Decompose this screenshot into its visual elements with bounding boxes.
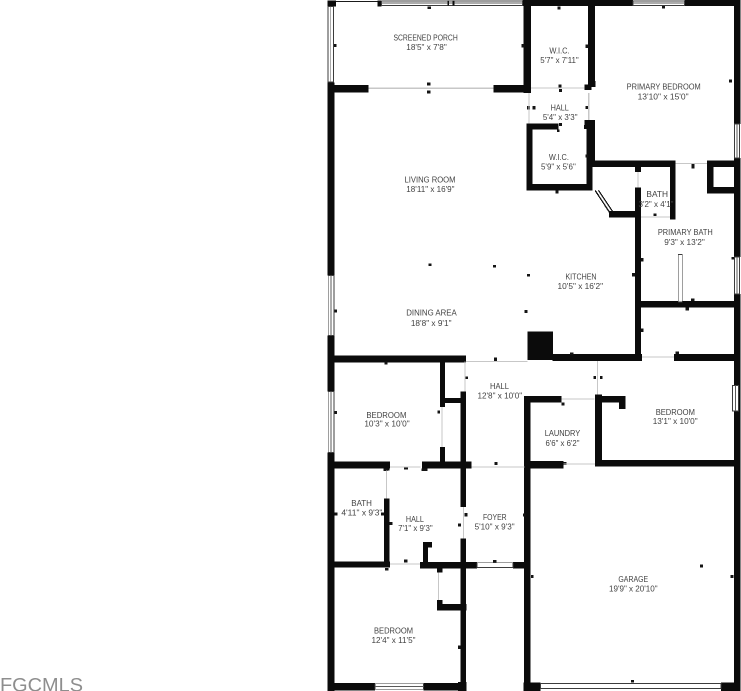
- svg-text:13'1" x 10'0": 13'1" x 10'0": [653, 416, 698, 426]
- svg-text:BATH: BATH: [646, 189, 668, 199]
- svg-text:18'5" x 7'8": 18'5" x 7'8": [406, 42, 447, 52]
- svg-text:19'9" x 20'10": 19'9" x 20'10": [609, 584, 658, 594]
- svg-text:5'9" x 5'6": 5'9" x 5'6": [541, 161, 576, 171]
- svg-text:10'3" x 10'0": 10'3" x 10'0": [364, 418, 409, 428]
- svg-text:GARAGE: GARAGE: [618, 574, 648, 584]
- svg-text:KITCHEN: KITCHEN: [565, 272, 596, 282]
- svg-text:LAUNDRY: LAUNDRY: [545, 428, 581, 438]
- svg-text:5'4" x 3'3": 5'4" x 3'3": [543, 112, 578, 122]
- svg-text:3'2" x 4'1": 3'2" x 4'1": [639, 199, 674, 209]
- svg-text:FGCMLS: FGCMLS: [0, 675, 83, 691]
- svg-text:5'10" x 9'3": 5'10" x 9'3": [475, 522, 515, 532]
- svg-text:HALL: HALL: [551, 102, 569, 112]
- svg-text:LIVING ROOM: LIVING ROOM: [404, 174, 455, 184]
- svg-text:FOYER: FOYER: [483, 512, 507, 522]
- svg-text:W.I.C.: W.I.C.: [549, 152, 569, 162]
- svg-text:12'4" x 11'5": 12'4" x 11'5": [372, 635, 416, 645]
- svg-text:12'8" x 10'0": 12'8" x 10'0": [477, 391, 522, 401]
- svg-text:7'1" x 9'3": 7'1" x 9'3": [398, 523, 433, 533]
- svg-text:18'11" x 16'9": 18'11" x 16'9": [406, 184, 454, 194]
- svg-text:13'10" x 15'0": 13'10" x 15'0": [638, 92, 689, 102]
- svg-text:9'3" x 13'2": 9'3" x 13'2": [664, 237, 705, 247]
- svg-text:10'5" x 16'2": 10'5" x 16'2": [558, 281, 604, 291]
- svg-text:5'7" x 7'11": 5'7" x 7'11": [540, 55, 579, 65]
- svg-text:PRIMARY BEDROOM: PRIMARY BEDROOM: [627, 81, 701, 91]
- svg-text:BEDROOM: BEDROOM: [374, 625, 413, 635]
- svg-text:HALL: HALL: [490, 381, 509, 391]
- svg-text:4'11" x 9'3": 4'11" x 9'3": [341, 507, 382, 517]
- svg-text:BATH: BATH: [351, 498, 372, 508]
- svg-text:18'8" x 9'1": 18'8" x 9'1": [411, 318, 452, 328]
- svg-text:DINING AREA: DINING AREA: [406, 308, 457, 318]
- svg-text:6'6" x 6'2": 6'6" x 6'2": [546, 438, 580, 448]
- svg-text:PRIMARY BATH: PRIMARY BATH: [658, 227, 713, 237]
